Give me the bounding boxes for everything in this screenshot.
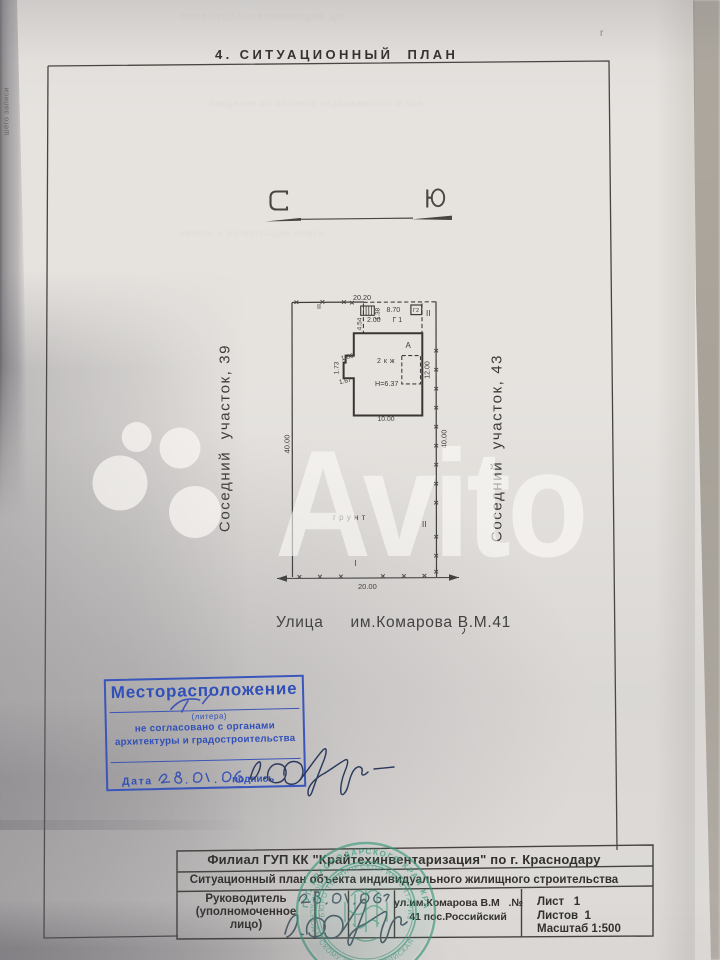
svg-text:Avito: Avito	[275, 420, 585, 589]
